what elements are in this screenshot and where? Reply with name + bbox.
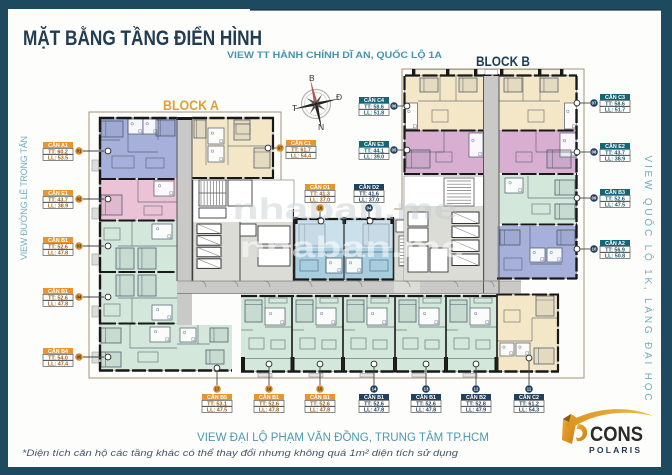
svg-text:CĂN D1: CĂN D1 — [310, 184, 330, 191]
svg-text:16: 16 — [267, 387, 272, 392]
svg-text:TT: 54.0: TT: 54.0 — [48, 355, 68, 361]
svg-text:BLOCK A: BLOCK A — [163, 98, 219, 113]
svg-text:TT: 60.2: TT: 60.2 — [48, 149, 68, 155]
svg-text:LL: 37.0: LL: 37.0 — [310, 198, 330, 204]
svg-text:TT: 52.6: TT: 52.6 — [364, 401, 384, 407]
svg-text:TT: 52.6: TT: 52.6 — [48, 295, 68, 301]
svg-text:LL: 47.8: LL: 47.8 — [416, 408, 436, 414]
svg-text:Đ: Đ — [336, 92, 342, 102]
svg-text:LL: 54.4: LL: 54.4 — [291, 154, 311, 160]
svg-text:CĂN B3: CĂN B3 — [605, 189, 625, 196]
svg-text:VIEW QUỐC LỘ 1K, LÀNG ĐẠI HỌC: VIEW QUỐC LỘ 1K, LÀNG ĐẠI HỌC — [642, 156, 656, 401]
svg-text:14: 14 — [372, 387, 377, 392]
svg-text:CONS: CONS — [590, 423, 643, 446]
svg-text:CĂN E2: CĂN E2 — [605, 143, 625, 150]
svg-text:TT: 61.7: TT: 61.7 — [291, 147, 311, 153]
svg-text:LL: 38.9: LL: 38.9 — [48, 204, 68, 210]
svg-text:*Diện tích căn hộ các tầng khá: *Diện tích căn hộ các tầng khác có thể t… — [22, 448, 458, 458]
svg-text:LL: 47.4: LL: 47.4 — [48, 362, 68, 368]
svg-text:15: 15 — [318, 387, 323, 392]
svg-text:04: 04 — [77, 295, 82, 300]
svg-text:LL: 51.8: LL: 51.8 — [364, 111, 384, 117]
svg-text:CĂN B1: CĂN B1 — [48, 288, 68, 295]
svg-text:17: 17 — [215, 387, 220, 392]
svg-text:CĂN C2: CĂN C2 — [519, 394, 539, 401]
svg-text:TT: 52.6: TT: 52.6 — [48, 244, 68, 250]
svg-text:VIEW TT HÀNH CHÍNH DĨ AN, QUỐC: VIEW TT HÀNH CHÍNH DĨ AN, QUỐC LỘ 1A — [227, 49, 442, 61]
svg-text:CĂN C3: CĂN C3 — [605, 94, 625, 101]
svg-text:CĂN A2: CĂN A2 — [605, 240, 625, 247]
svg-text:N: N — [318, 122, 324, 132]
svg-text:TT: 61.2: TT: 61.2 — [519, 401, 539, 407]
svg-text:05: 05 — [77, 355, 82, 360]
svg-text:CĂN B1: CĂN B1 — [310, 394, 330, 401]
svg-text:CĂN D2: CĂN D2 — [359, 184, 379, 191]
svg-text:B: B — [309, 73, 315, 83]
svg-text:TT: 44.1: TT: 44.1 — [364, 148, 384, 154]
svg-text:TT: 52.6: TT: 52.6 — [259, 401, 279, 407]
svg-text:LL: 38.9: LL: 38.9 — [605, 157, 625, 163]
svg-text:CĂN B4: CĂN B4 — [48, 348, 68, 355]
svg-text:CĂN B1: CĂN B1 — [416, 394, 436, 401]
svg-text:LL: 47.5: LL: 47.5 — [605, 203, 625, 209]
svg-text:LL: 54.3: LL: 54.3 — [519, 408, 539, 414]
svg-text:TT: 52.6: TT: 52.6 — [416, 401, 436, 407]
svg-text:BLOCK B: BLOCK B — [476, 54, 530, 69]
svg-text:04: 04 — [367, 206, 372, 211]
svg-text:TT: 52.8: TT: 52.8 — [466, 401, 486, 407]
svg-text:06: 06 — [392, 104, 397, 109]
svg-text:01: 01 — [77, 149, 82, 154]
svg-text:MẶT BẰNG TẦNG ĐIỂN HÌNH: MẶT BẰNG TẦNG ĐIỂN HÌNH — [23, 26, 262, 50]
svg-text:VIEW ĐƯỜNG LÊ TRỌNG TẤN: VIEW ĐƯỜNG LÊ TRỌNG TẤN — [19, 136, 29, 260]
svg-text:LL: 47.9: LL: 47.9 — [466, 408, 486, 414]
svg-text:T: T — [292, 103, 297, 113]
svg-text:TT: 53.1: TT: 53.1 — [207, 401, 227, 407]
svg-text:LL: 47.8: LL: 47.8 — [48, 251, 68, 257]
svg-text:LL: 50.8: LL: 50.8 — [605, 254, 625, 260]
svg-text:CĂN B1: CĂN B1 — [364, 394, 384, 401]
svg-text:VIEW ĐẠI LỘ PHẠM VĂN ĐỒNG, TRU: VIEW ĐẠI LỘ PHẠM VĂN ĐỒNG, TRUNG TÂM TP.… — [197, 431, 489, 444]
svg-text:LL: 53.5: LL: 53.5 — [48, 156, 68, 162]
svg-text:nhaban.me: nhaban.me — [240, 231, 465, 264]
svg-text:11: 11 — [527, 387, 532, 392]
svg-text:07: 07 — [278, 146, 283, 151]
svg-text:LL: 39.0: LL: 39.0 — [364, 155, 384, 161]
svg-text:TT: 43.7: TT: 43.7 — [48, 197, 68, 203]
svg-text:TT: 41.6: TT: 41.6 — [359, 191, 379, 197]
svg-text:09: 09 — [592, 196, 597, 201]
svg-text:CĂN A1: CĂN A1 — [48, 142, 68, 149]
svg-text:LL: 47.8: LL: 47.8 — [259, 408, 279, 414]
svg-text:TT: 41.3: TT: 41.3 — [310, 191, 330, 197]
svg-text:16: 16 — [318, 206, 323, 211]
svg-text:TT: 58.6: TT: 58.6 — [364, 104, 384, 110]
svg-text:CĂN B1: CĂN B1 — [48, 237, 68, 244]
svg-text:CĂN B2: CĂN B2 — [466, 394, 486, 401]
svg-text:CĂN B1: CĂN B1 — [259, 394, 279, 401]
svg-text:02: 02 — [77, 197, 82, 202]
svg-text:LL: 51.7: LL: 51.7 — [605, 108, 625, 114]
svg-text:LL: 47.8: LL: 47.8 — [48, 302, 68, 308]
svg-text:07: 07 — [592, 101, 597, 106]
svg-text:05: 05 — [392, 148, 397, 153]
svg-text:LL: 47.8: LL: 47.8 — [310, 408, 330, 414]
svg-text:10: 10 — [592, 247, 597, 252]
svg-text:nhaban.me: nhaban.me — [233, 193, 458, 226]
svg-text:LL: 47.5: LL: 47.5 — [207, 408, 227, 414]
svg-text:CĂN C4: CĂN C4 — [364, 97, 384, 104]
svg-text:TT: 58.6: TT: 58.6 — [605, 101, 625, 107]
svg-text:CĂN C1: CĂN C1 — [291, 140, 311, 147]
svg-text:12: 12 — [474, 387, 479, 392]
svg-text:CĂN E1: CĂN E1 — [48, 190, 68, 197]
svg-text:TT: 52.6: TT: 52.6 — [605, 196, 625, 202]
svg-text:CĂN B5: CĂN B5 — [207, 394, 227, 401]
svg-text:CĂN E3: CĂN E3 — [364, 141, 384, 148]
svg-text:LL: 47.8: LL: 47.8 — [364, 408, 384, 414]
svg-text:TT: 56.9: TT: 56.9 — [605, 247, 625, 253]
svg-text:TT: 43.7: TT: 43.7 — [605, 150, 625, 156]
svg-text:TT: 52.6: TT: 52.6 — [310, 401, 330, 407]
svg-text:03: 03 — [77, 244, 82, 249]
svg-text:08: 08 — [592, 150, 597, 155]
svg-text:13: 13 — [424, 387, 429, 392]
svg-text:LL: 37.0: LL: 37.0 — [359, 198, 379, 204]
